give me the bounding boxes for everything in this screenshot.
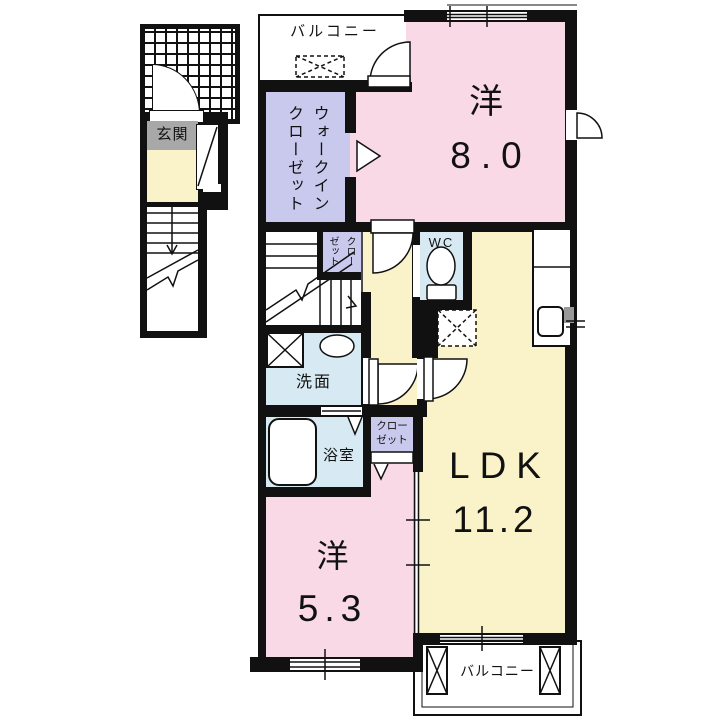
balcony-bottom-label: バルコニー: [430, 658, 565, 686]
stair-arrow: [346, 296, 356, 308]
wall-ldk-bottom: [413, 633, 577, 645]
wall-fridge-pier: [412, 310, 438, 358]
door-arc-right-out: [577, 113, 602, 138]
western8-size-label: 8.0: [406, 128, 566, 184]
western5-size-label: 5.3: [280, 580, 385, 638]
wall-bath-bottom: [258, 487, 371, 497]
washroom-label: 洗面: [266, 368, 362, 398]
walk-in-closet-label: ウォークイン クローゼット: [280, 105, 331, 213]
floor-plan: 玄関: [0, 0, 720, 720]
wall-wc-bottom: [412, 300, 472, 310]
entrance-stairwell-walls: [140, 200, 207, 338]
wall-below-balcony: [258, 82, 412, 92]
genkan-floor: [147, 150, 198, 202]
genkan-label: 玄関: [147, 121, 198, 150]
ldk-size-label: 11.2: [420, 492, 570, 548]
balcony-top-label: バルコニー: [262, 20, 408, 44]
wall-opening: [203, 184, 221, 192]
closet-low-label: クロー ゼット: [369, 413, 415, 453]
bathroom-label: 浴室: [314, 444, 364, 468]
wall-top: [404, 10, 577, 22]
closet-mid-label: クロー ゼット: [324, 236, 358, 266]
wc-label: WC: [418, 230, 465, 256]
room-western-8-l: [350, 86, 412, 230]
shoe-cabinet: [196, 124, 219, 190]
wall-stair-hall: [361, 292, 371, 405]
wall-western5-bottom: [250, 657, 423, 672]
kitchen-sink: [537, 306, 564, 337]
wall-washroom-top: [258, 325, 371, 333]
western8-name-label: 洋: [406, 78, 566, 128]
ldk-name-label: LDK: [420, 440, 570, 492]
western5-name-label: 洋: [290, 534, 375, 580]
